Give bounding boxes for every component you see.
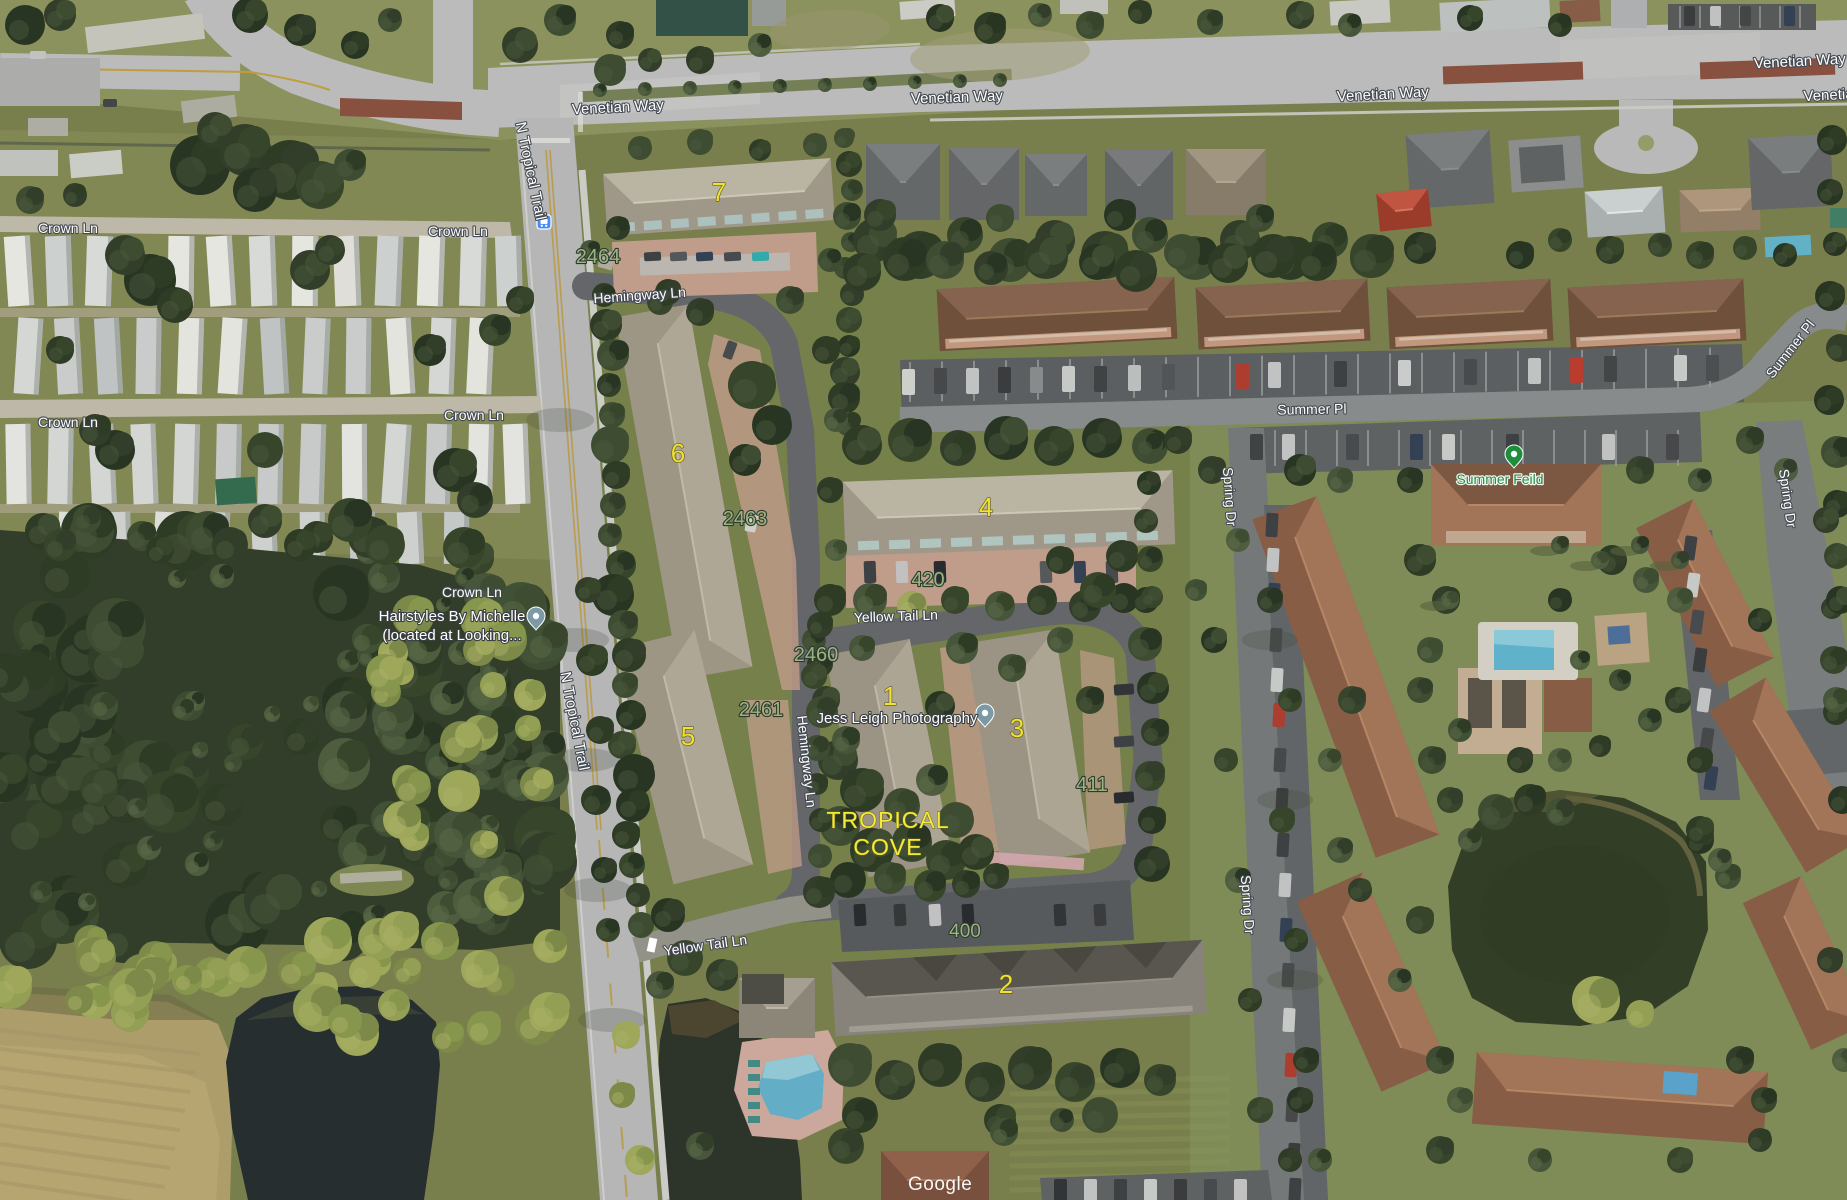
svg-text:6: 6 [671,438,685,468]
svg-text:2464: 2464 [576,246,621,268]
svg-text:3: 3 [1010,713,1024,743]
svg-text:TROPICAL: TROPICAL [826,807,949,833]
svg-text:Crown Ln: Crown Ln [38,220,98,236]
svg-text:2: 2 [999,969,1013,999]
svg-text:400: 400 [949,921,981,942]
svg-text:2460: 2460 [794,644,839,666]
svg-text:Venetian Wa: Venetian Wa [1803,84,1847,105]
svg-text:420: 420 [911,569,944,591]
svg-text:(located at Looking...: (located at Looking... [382,627,521,644]
svg-text:411: 411 [1076,774,1108,796]
svg-text:Venetian Way: Venetian Way [911,87,1004,107]
svg-text:1: 1 [883,681,897,711]
svg-text:Crown Ln: Crown Ln [38,414,98,430]
svg-text:Crown Ln: Crown Ln [428,223,488,239]
svg-text:COVE: COVE [853,834,922,860]
svg-text:2461: 2461 [739,699,784,721]
svg-text:Google: Google [908,1174,972,1195]
svg-text:5: 5 [681,721,695,751]
svg-text:Yellow Tail Ln: Yellow Tail Ln [854,607,939,626]
svg-text:Summer Pl: Summer Pl [1277,400,1347,417]
svg-text:Summer Feild: Summer Feild [1456,471,1543,487]
svg-text:Crown Ln: Crown Ln [442,584,502,600]
svg-text:4: 4 [979,492,993,522]
svg-text:Jess Leigh Photography: Jess Leigh Photography [817,710,978,727]
svg-text:2463: 2463 [723,508,768,530]
svg-text:7: 7 [712,177,726,207]
svg-text:Crown Ln: Crown Ln [444,407,504,423]
svg-text:Hairstyles By Michelle: Hairstyles By Michelle [379,608,526,625]
